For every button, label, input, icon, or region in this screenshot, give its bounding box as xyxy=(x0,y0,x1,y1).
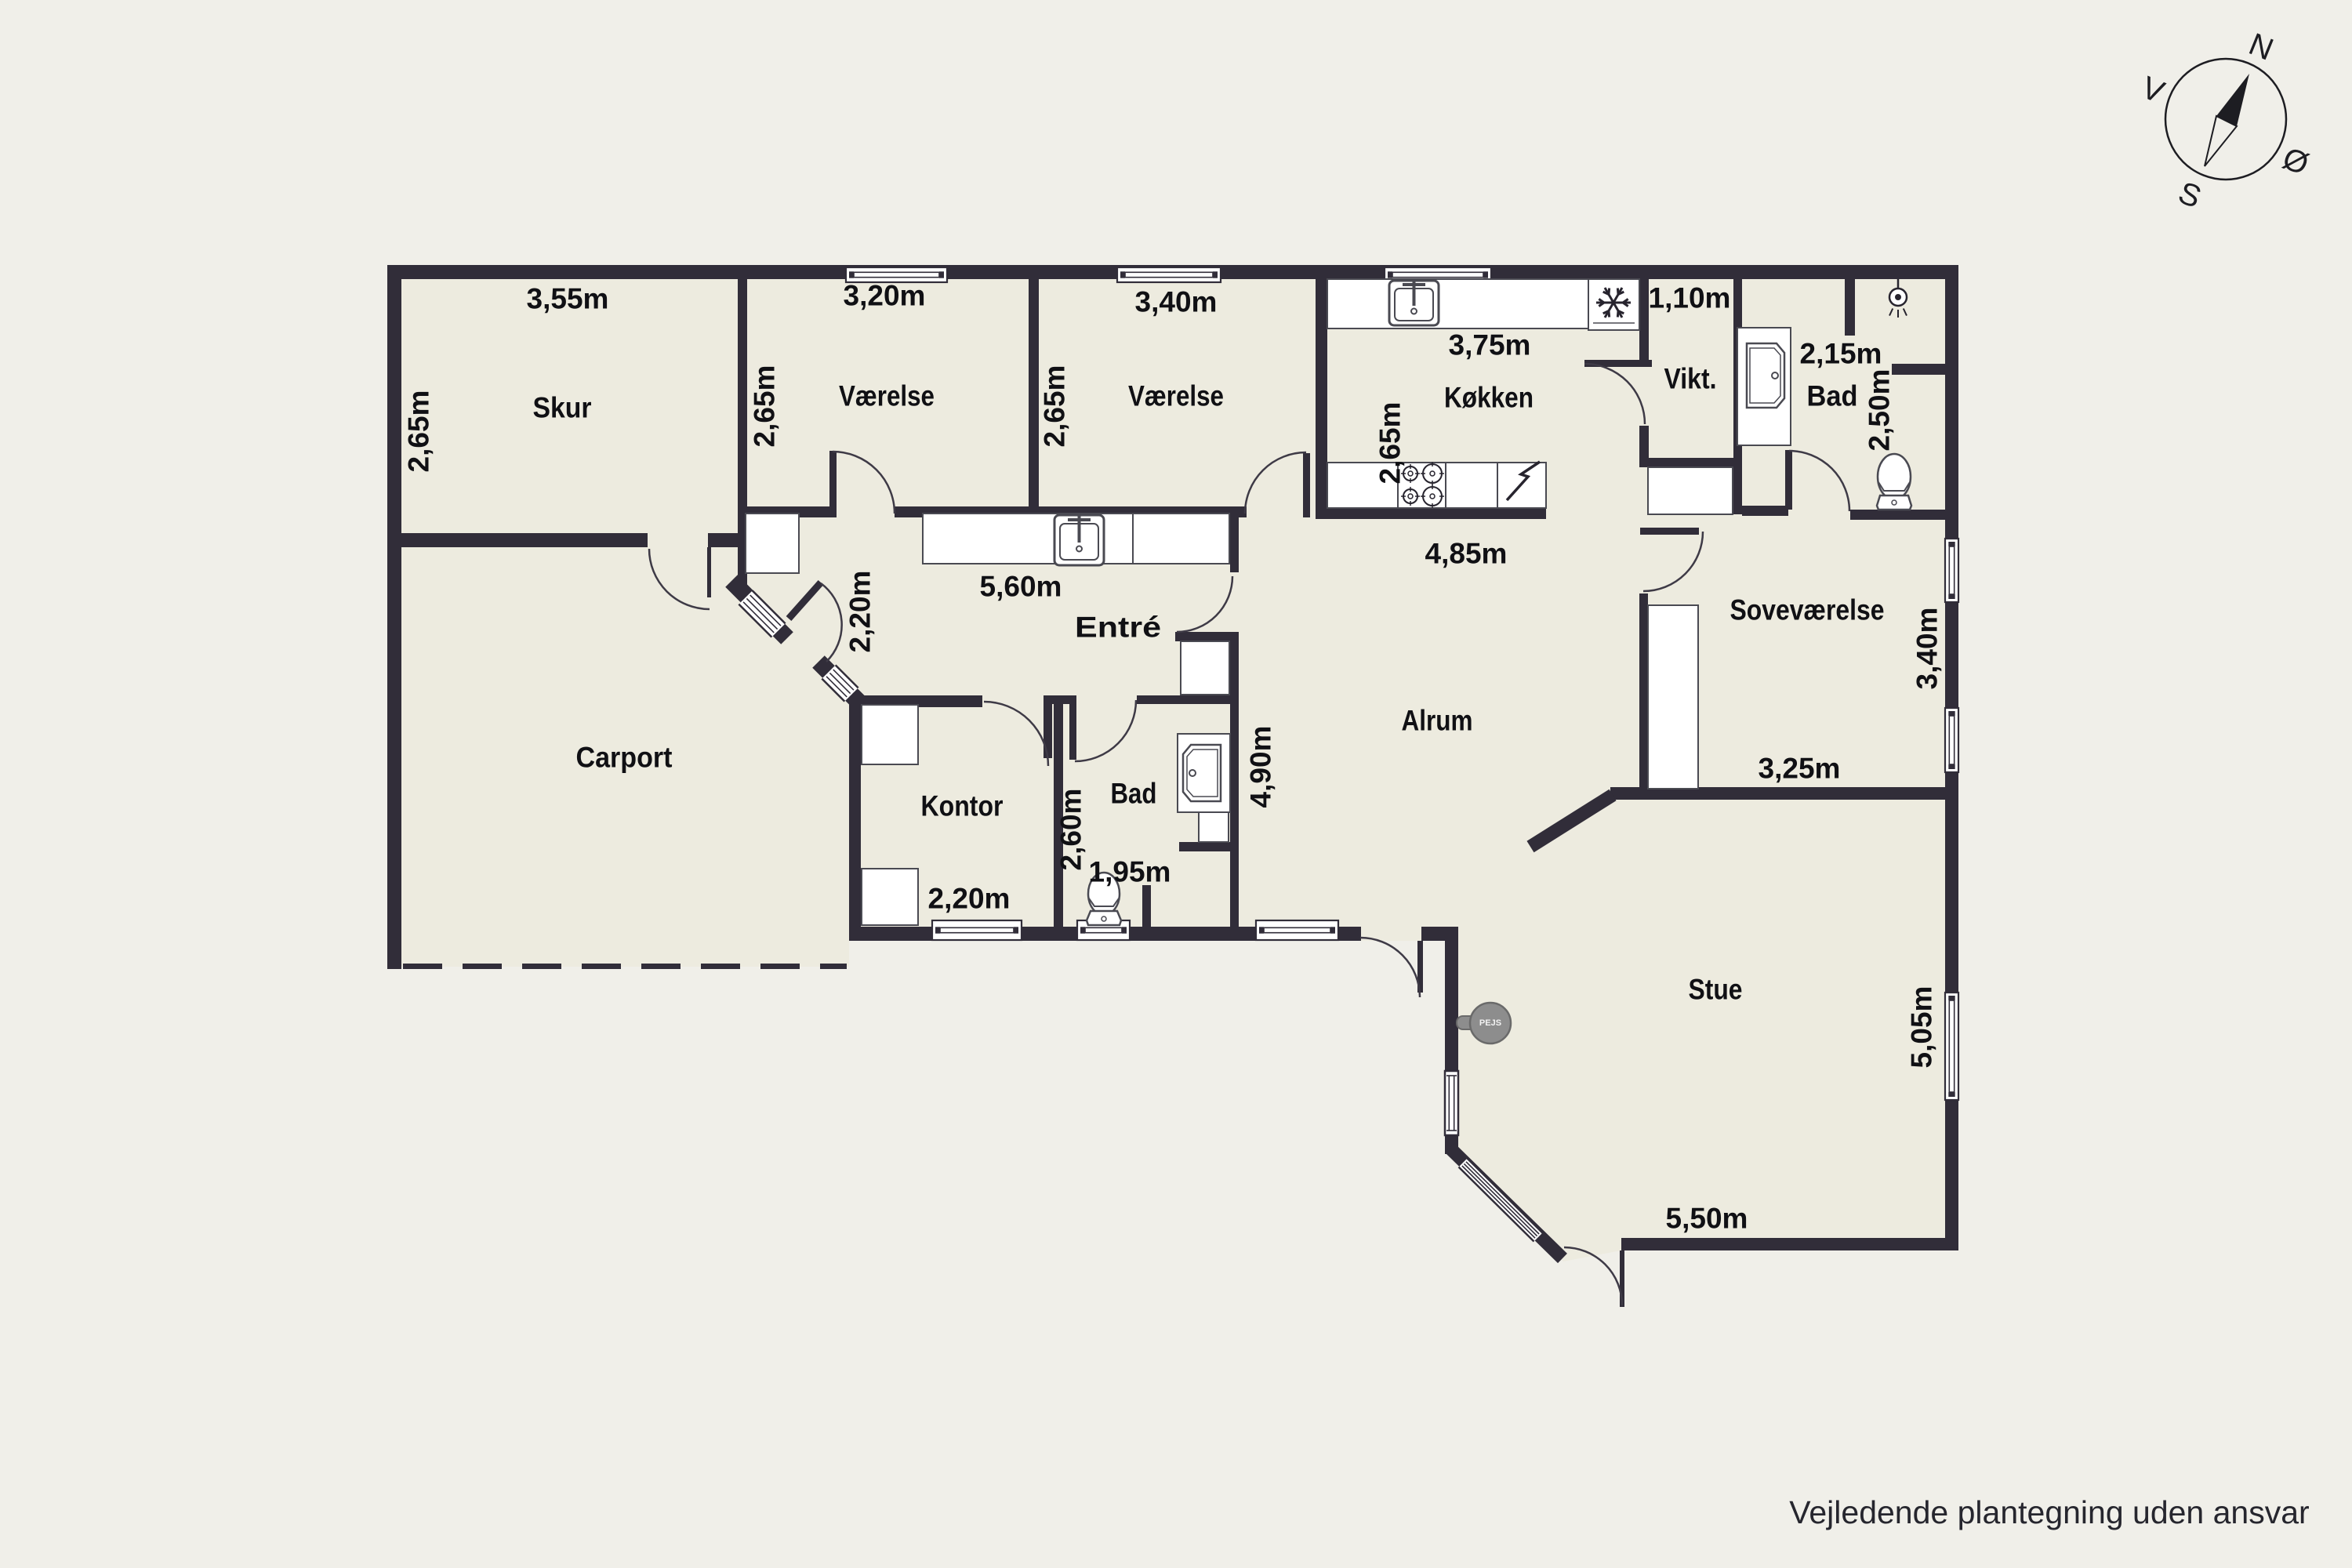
svg-text:2,65m: 2,65m xyxy=(1039,365,1071,448)
svg-text:Alrum: Alrum xyxy=(1402,705,1473,737)
svg-text:4,85m: 4,85m xyxy=(1425,538,1508,570)
svg-text:2,20m: 2,20m xyxy=(928,883,1011,915)
svg-text:3,20m: 3,20m xyxy=(844,280,926,312)
svg-text:Skur: Skur xyxy=(533,392,592,424)
svg-text:Bad: Bad xyxy=(1111,778,1157,810)
svg-text:Bad: Bad xyxy=(1807,380,1858,412)
svg-text:Køkken: Køkken xyxy=(1444,382,1534,414)
svg-text:2,65m: 2,65m xyxy=(1374,402,1406,485)
svg-text:Vejledende plantegning uden an: Vejledende plantegning uden ansvar xyxy=(1789,1494,2309,1530)
svg-text:Stue: Stue xyxy=(1689,974,1743,1006)
svg-text:5,50m: 5,50m xyxy=(1666,1203,1748,1235)
svg-text:2,65m: 2,65m xyxy=(403,390,435,473)
svg-text:Soveværelse: Soveværelse xyxy=(1730,594,1885,626)
svg-text:PEJS: PEJS xyxy=(1479,1018,1501,1028)
svg-text:Værelse: Værelse xyxy=(839,380,935,412)
svg-text:2,20m: 2,20m xyxy=(844,571,877,653)
svg-text:4,90m: 4,90m xyxy=(1245,726,1277,808)
svg-text:Vikt.: Vikt. xyxy=(1664,363,1717,395)
svg-text:2,15m: 2,15m xyxy=(1800,338,1882,370)
svg-text:Kontor: Kontor xyxy=(921,790,1004,822)
svg-text:5,60m: 5,60m xyxy=(980,571,1062,603)
svg-text:1,95m: 1,95m xyxy=(1089,856,1171,888)
svg-text:Carport: Carport xyxy=(576,742,673,774)
svg-text:3,25m: 3,25m xyxy=(1759,753,1841,785)
svg-text:3,40m: 3,40m xyxy=(1911,608,1944,690)
svg-text:1,10m: 1,10m xyxy=(1649,282,1731,314)
svg-text:2,65m: 2,65m xyxy=(749,365,781,448)
svg-text:2,50m: 2,50m xyxy=(1864,369,1896,452)
svg-text:Entré: Entré xyxy=(1075,612,1161,644)
svg-text:3,75m: 3,75m xyxy=(1449,329,1531,361)
svg-text:3,55m: 3,55m xyxy=(527,283,609,315)
svg-text:5,05m: 5,05m xyxy=(1906,986,1938,1069)
svg-text:2,60m: 2,60m xyxy=(1055,789,1087,871)
svg-text:Værelse: Værelse xyxy=(1128,380,1224,412)
svg-text:3,40m: 3,40m xyxy=(1135,286,1218,318)
